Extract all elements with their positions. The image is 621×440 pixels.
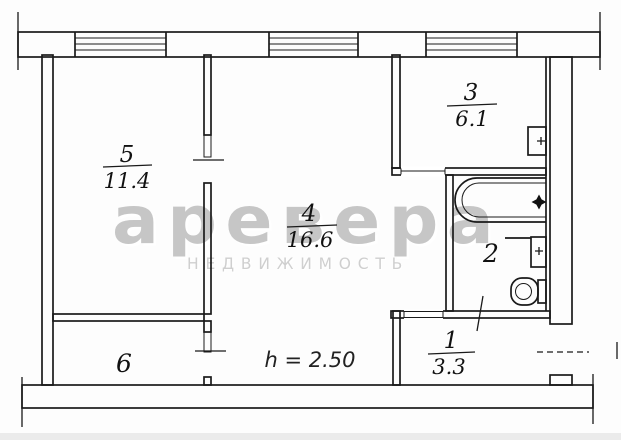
bottom-extension-ticks (22, 374, 593, 427)
closet-top-wall (53, 314, 204, 321)
toilet-bowl-circle (516, 284, 532, 300)
room-3-number: 3 (464, 80, 479, 106)
room-4-area: 16.6 (287, 228, 334, 252)
hallway-left-wall (393, 311, 400, 385)
room-2-number: 2 (482, 239, 499, 268)
vent-box-icon (528, 127, 546, 155)
bathroom-door-tick (477, 296, 483, 331)
bottom-outer-wall (22, 374, 593, 427)
top-wall-band (18, 12, 600, 70)
watermark-subtitle: НЕДВИЖИМОСТЬ (187, 254, 409, 273)
room-3-area: 6.1 (455, 107, 488, 131)
kitchen-left-wall (392, 55, 400, 168)
toilet-cistern (538, 280, 546, 303)
bottom-wall-outline (22, 385, 593, 408)
window-1-hatch (75, 38, 166, 50)
room-5-number: 5 (120, 142, 135, 168)
room-6-number: 6 (116, 349, 132, 378)
door-jamb-block (204, 135, 211, 157)
right-wall-lower (550, 375, 572, 385)
wall-segment (204, 55, 211, 135)
right-outer-wall (537, 57, 617, 385)
four-point-star-icon (532, 195, 547, 210)
ceiling-height-note: h = 2.50 (264, 348, 355, 372)
right-wall-upper (550, 57, 572, 324)
left-outer-wall (42, 55, 53, 385)
hallway-top-wall (391, 296, 550, 331)
scanned-floor-plan-page: аревера аревера НЕДВИЖИМОСТЬ НЕДВИЖИМОСТ… (0, 0, 621, 440)
wall-segment (204, 321, 211, 332)
floor-plan-drawing: аревера аревера НЕДВИЖИМОСТЬ НЕДВИЖИМОСТ… (0, 0, 621, 440)
room-5-area: 11.4 (104, 169, 151, 193)
sink-box-icon (505, 237, 546, 267)
window-2-hatch (269, 38, 358, 50)
wall-segment (204, 377, 211, 385)
room-1-area: 3.3 (432, 355, 465, 379)
kitchen-bottom-wall (392, 167, 546, 176)
plus-mark (537, 137, 545, 145)
toilet-icon (511, 278, 546, 305)
corner-extension-ticks (18, 12, 600, 70)
room-1-number: 1 (444, 328, 459, 354)
scan-edge-artifact (0, 433, 621, 440)
window-3-hatch (426, 38, 517, 50)
room-4-number: 4 (301, 201, 317, 227)
plus-mark (535, 247, 543, 255)
door-jamb-block (204, 332, 211, 352)
